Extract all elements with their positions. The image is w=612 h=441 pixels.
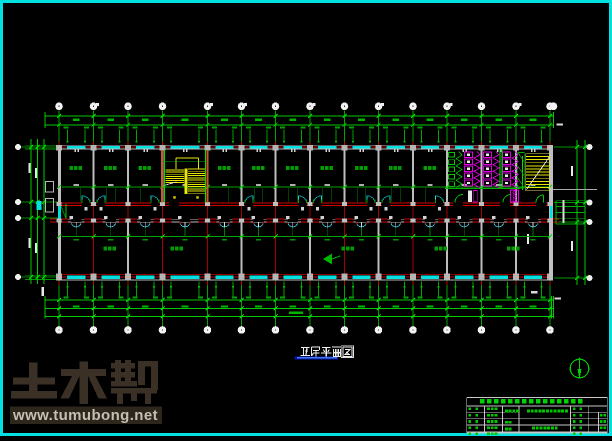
svg-text:www.tumubong.net: www.tumubong.net: [12, 407, 158, 424]
